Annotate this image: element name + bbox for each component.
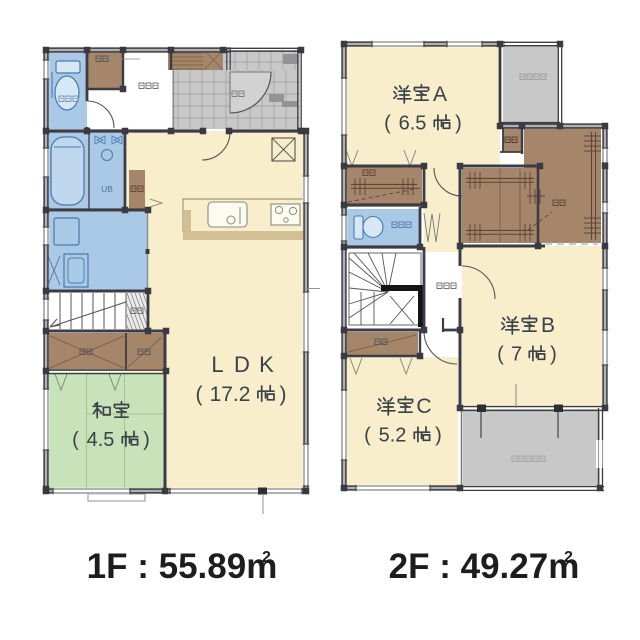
svg-text:1F : 55.89m: 1F : 55.89m: [87, 547, 278, 586]
svg-text:(: (: [364, 425, 371, 447]
svg-text:D: D: [234, 352, 250, 377]
svg-text:7: 7: [511, 344, 522, 366]
svg-text:): ): [279, 383, 286, 406]
svg-text:): ): [143, 429, 150, 451]
svg-text:5.2: 5.2: [379, 425, 407, 447]
svg-text:6.5: 6.5: [399, 113, 427, 135]
svg-text:UB: UB: [101, 184, 113, 194]
svg-text:B: B: [541, 314, 555, 337]
svg-text:2F : 49.27m: 2F : 49.27m: [389, 547, 580, 586]
svg-text:2: 2: [564, 549, 573, 566]
svg-text:K: K: [259, 352, 274, 377]
svg-text:(: (: [196, 383, 203, 406]
svg-text:17.2: 17.2: [210, 383, 251, 406]
svg-text:): ): [435, 425, 442, 447]
svg-text:L: L: [211, 352, 223, 377]
svg-text:A: A: [433, 83, 447, 106]
svg-text:(: (: [497, 344, 504, 366]
svg-text:2: 2: [262, 549, 271, 566]
svg-text:(: (: [384, 113, 391, 135]
svg-text:C: C: [416, 395, 431, 418]
svg-text:): ): [550, 344, 557, 366]
svg-text:): ): [455, 113, 462, 135]
svg-text:4.5: 4.5: [87, 429, 115, 451]
svg-text:(: (: [72, 429, 79, 451]
